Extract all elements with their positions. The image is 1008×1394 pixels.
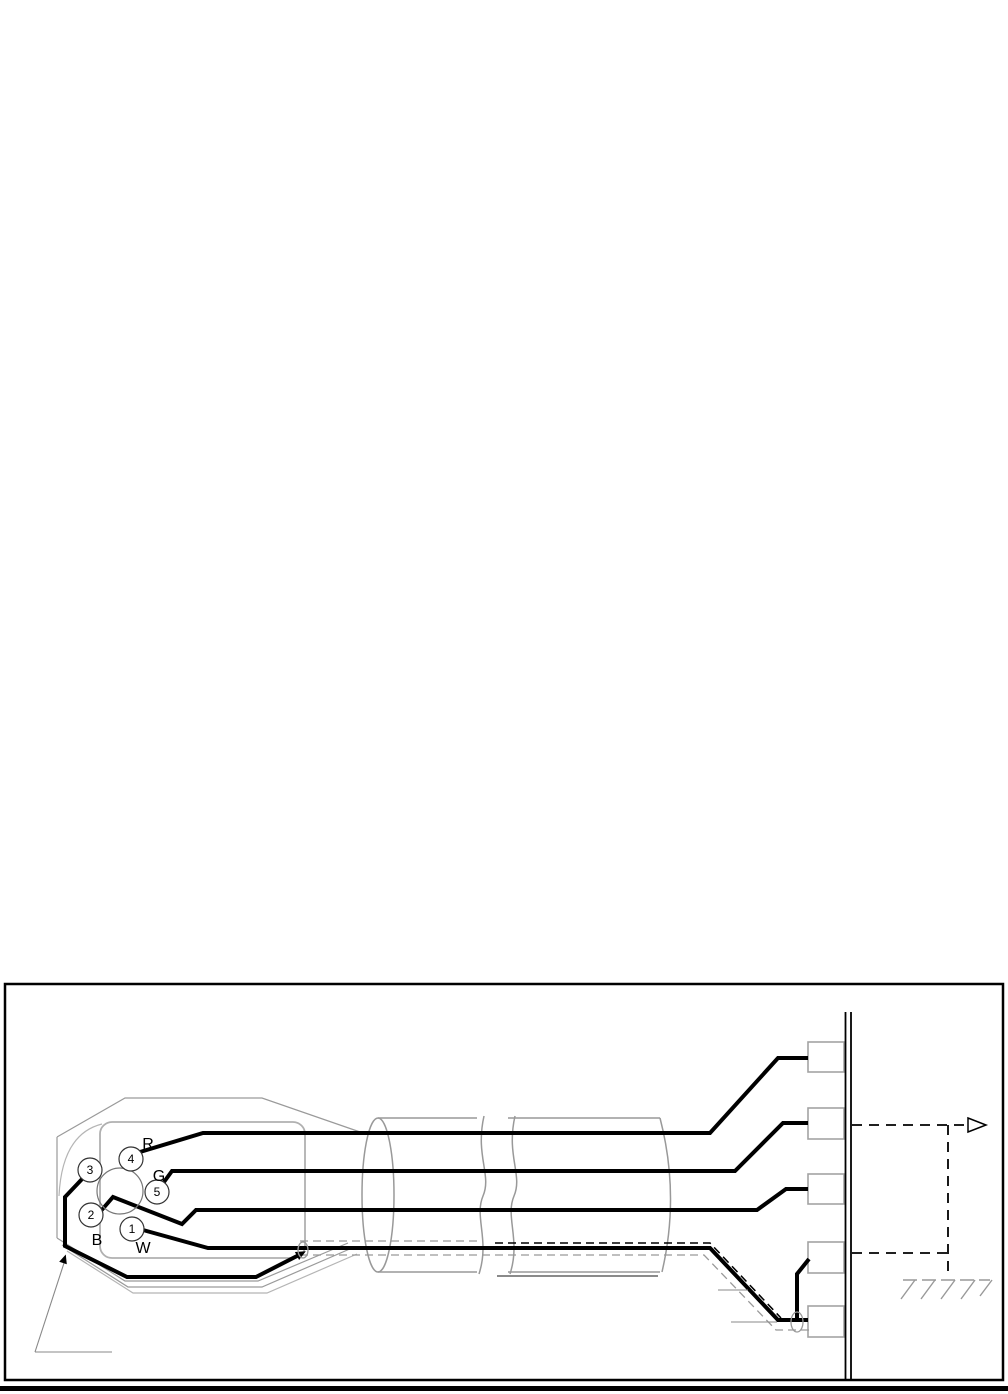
terminal-block-5 xyxy=(808,1306,844,1337)
mounting-panel xyxy=(846,1012,852,1381)
connector-pins: 3 4 5 2 1 xyxy=(78,1147,169,1241)
pin-4-label: 4 xyxy=(128,1152,135,1166)
cable xyxy=(362,1116,671,1276)
wire-label-w: W xyxy=(135,1240,151,1257)
shield-dashed-paths xyxy=(300,1241,812,1330)
document-page: 3 4 5 2 1 R G B W xyxy=(0,0,1008,1394)
page-bottom-rule xyxy=(0,1386,1008,1391)
pin-5-label: 5 xyxy=(154,1185,161,1199)
pin-2-label: 2 xyxy=(88,1208,95,1222)
chassis-ground-icon xyxy=(901,1280,992,1299)
wire-label-r: R xyxy=(142,1136,154,1153)
wire-red-pin4 xyxy=(140,1058,808,1152)
wiring-diagram: 3 4 5 2 1 R G B W xyxy=(0,0,1008,1394)
wire-black-pin2 xyxy=(100,1189,808,1224)
continuation-arrow-icon xyxy=(968,1118,986,1132)
terminal-block-4 xyxy=(808,1242,844,1273)
pin-1-label: 1 xyxy=(129,1222,136,1236)
ground-dashed-path xyxy=(852,1125,966,1276)
ground-hatch-4 xyxy=(961,1280,975,1299)
ground-hatch-5 xyxy=(980,1280,992,1296)
terminal-blocks xyxy=(808,1042,844,1337)
terminal-block-3 xyxy=(808,1174,844,1204)
cable-break-right xyxy=(510,1116,517,1274)
wire-label-g: G xyxy=(153,1168,165,1185)
callout-arrowhead-icon xyxy=(59,1253,69,1264)
terminal-block-2 xyxy=(808,1108,844,1139)
wire-label-b: B xyxy=(92,1232,103,1249)
terminal-block-1 xyxy=(808,1042,844,1072)
ground-hatch-1 xyxy=(901,1280,915,1299)
ground-hatch-2 xyxy=(921,1280,935,1299)
callout-leader xyxy=(35,1260,65,1352)
ground-hatch-3 xyxy=(941,1280,955,1299)
leader-lines xyxy=(35,1260,777,1352)
shield-dash-lower xyxy=(300,1255,812,1330)
cable-break-left xyxy=(479,1116,486,1274)
connector-center-boss xyxy=(97,1168,143,1214)
pin-3-label: 3 xyxy=(87,1163,94,1177)
